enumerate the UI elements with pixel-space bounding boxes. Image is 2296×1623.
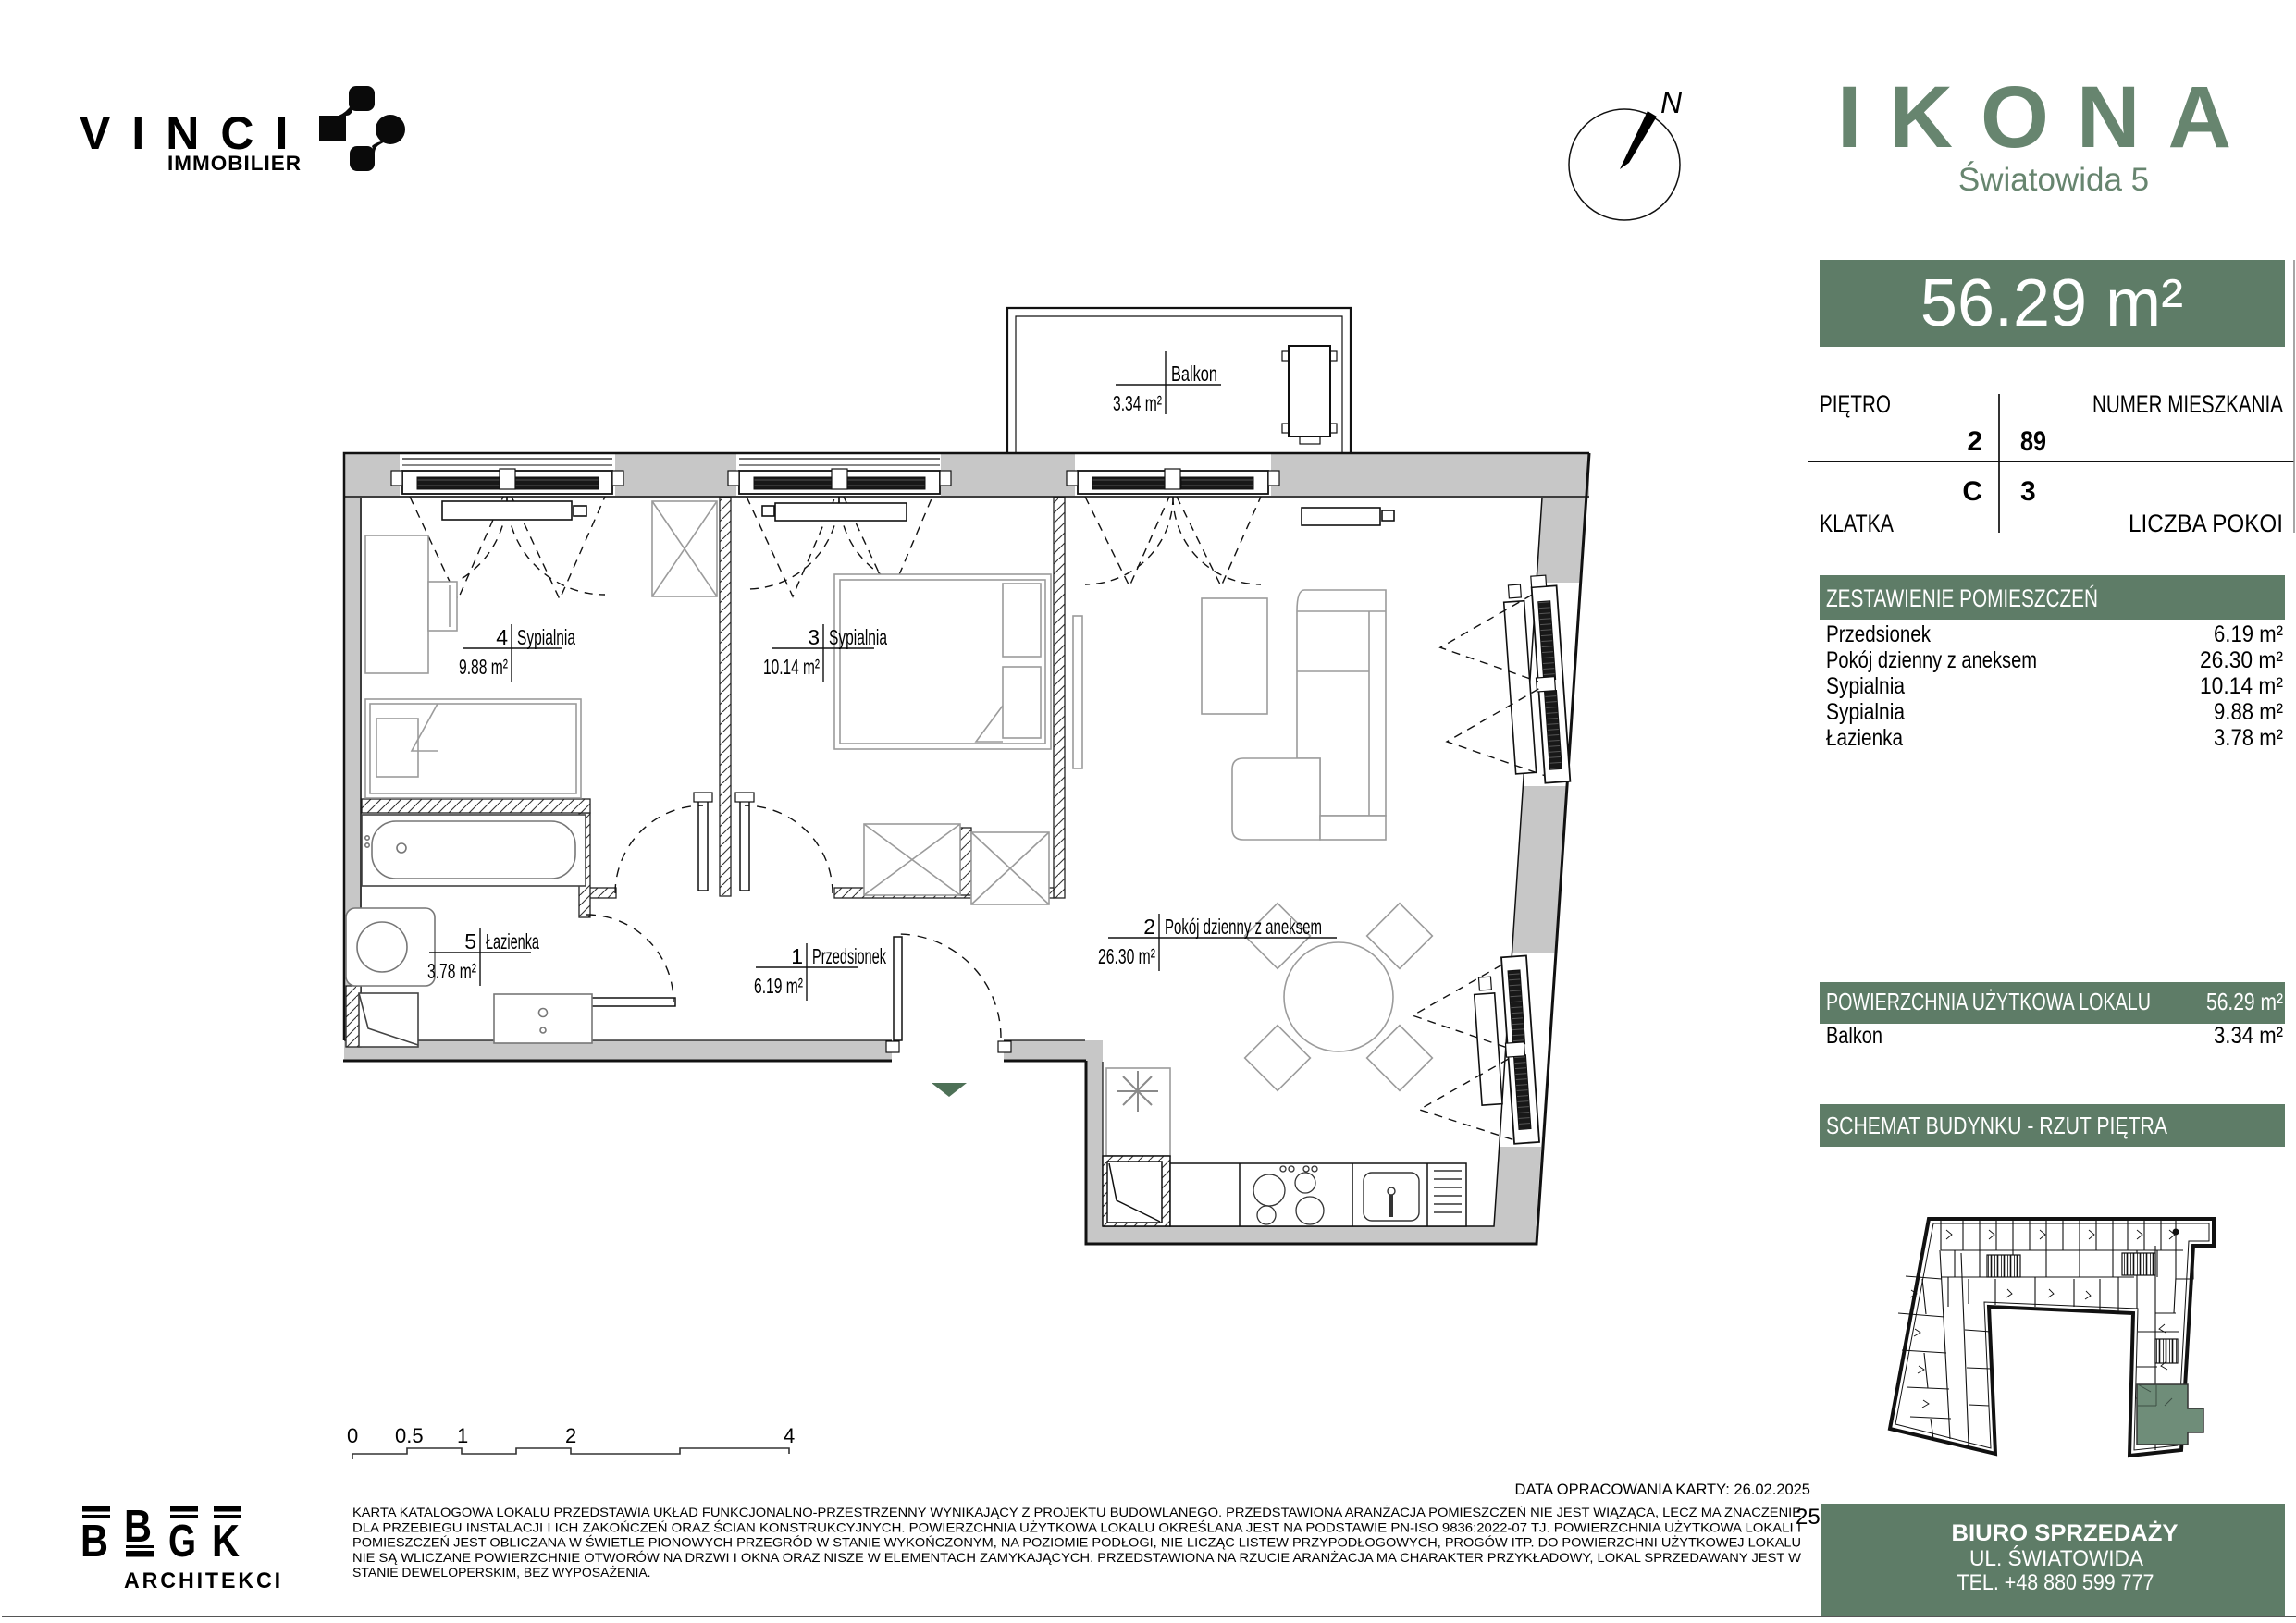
svg-text:3.78 m²: 3.78 m² <box>427 959 476 983</box>
svg-text:4: 4 <box>496 625 508 649</box>
svg-text:Balkon: Balkon <box>1171 362 1217 386</box>
svg-text:N: N <box>1660 86 1683 119</box>
svg-text:IKONA: IKONA <box>1837 68 2259 166</box>
svg-text:Przedsionek: Przedsionek <box>812 944 886 968</box>
svg-text:0: 0 <box>347 1424 358 1447</box>
svg-text:3.34 m²: 3.34 m² <box>2214 1023 2283 1049</box>
svg-text:TEL. +48 880 599 777: TEL. +48 880 599 777 <box>1957 1570 2154 1595</box>
svg-text:Sypialnia: Sypialnia <box>829 625 887 649</box>
svg-text:IMMOBILIER: IMMOBILIER <box>167 152 302 175</box>
svg-text:DATA OPRACOWANIA KARTY: 26.02.: DATA OPRACOWANIA KARTY: 26.02.2025 <box>1515 1482 1810 1498</box>
svg-text:Światowida 5: Światowida 5 <box>1958 161 2149 198</box>
svg-text:LICZBA POKOI: LICZBA POKOI <box>2129 510 2283 537</box>
svg-text:B: B <box>80 1517 108 1567</box>
svg-text:10.14 m²: 10.14 m² <box>763 655 820 679</box>
svg-text:3.34 m²: 3.34 m² <box>1113 391 1162 415</box>
svg-text:UL. ŚWIATOWIDA: UL. ŚWIATOWIDA <box>1969 1545 2143 1571</box>
svg-text:2: 2 <box>1143 915 1155 939</box>
svg-text:3: 3 <box>2020 476 2036 507</box>
svg-text:26.30 m²: 26.30 m² <box>1098 944 1155 968</box>
svg-text:POWIERZCHNIA UŻYTKOWA LOKALU: POWIERZCHNIA UŻYTKOWA LOKALU <box>1826 988 2151 1015</box>
svg-text:4: 4 <box>784 1424 795 1447</box>
svg-text:Sypialnia: Sypialnia <box>1826 673 1905 699</box>
svg-text:ZESTAWIENIE POMIESZCZEŃ: ZESTAWIENIE POMIESZCZEŃ <box>1826 584 2098 612</box>
svg-text:Łazienka: Łazienka <box>1826 725 1903 751</box>
svg-text:KARTA KATALOGOWA LOKALU PRZEDS: KARTA KATALOGOWA LOKALU PRZEDSTAWIA UKŁA… <box>352 1504 1801 1519</box>
svg-text:9.88 m²: 9.88 m² <box>459 655 508 679</box>
svg-text:NIE SĄ WLICZANE POWIERZCHNIE O: NIE SĄ WLICZANE POWIERZCHNIE OTWORÓW NA … <box>352 1549 1802 1565</box>
svg-text:Balkon: Balkon <box>1826 1023 1882 1049</box>
svg-text:G: G <box>168 1517 196 1567</box>
svg-text:5: 5 <box>464 929 476 953</box>
svg-text:PIĘTRO: PIĘTRO <box>1820 390 1891 418</box>
svg-text:Sypialnia: Sypialnia <box>517 625 575 649</box>
svg-text:6.19 m²: 6.19 m² <box>2214 621 2283 647</box>
svg-text:0.5: 0.5 <box>395 1424 424 1447</box>
svg-text:NUMER MIESZKANIA: NUMER MIESZKANIA <box>2092 390 2283 418</box>
svg-text:1: 1 <box>457 1424 468 1447</box>
svg-text:3.78 m²: 3.78 m² <box>2214 725 2283 751</box>
svg-text:56.29 m²: 56.29 m² <box>1920 266 2183 340</box>
svg-text:2: 2 <box>565 1424 576 1447</box>
svg-text:1: 1 <box>791 944 803 968</box>
svg-text:ARCHITEKCI: ARCHITEKCI <box>124 1568 283 1593</box>
svg-text:25: 25 <box>1796 1505 1821 1530</box>
svg-text:Pokój dzienny z aneksem: Pokój dzienny z aneksem <box>1165 915 1322 939</box>
svg-text:2: 2 <box>1967 426 1982 457</box>
svg-text:Łazienka: Łazienka <box>486 929 539 953</box>
svg-text:K: K <box>212 1517 240 1567</box>
svg-text:BIURO SPRZEDAŻY: BIURO SPRZEDAŻY <box>1952 1520 2179 1546</box>
svg-text:26.30 m²: 26.30 m² <box>2200 647 2283 673</box>
svg-text:B: B <box>124 1502 152 1552</box>
svg-text:POMIESZCZEŃ JEST OBLICZANA W Ś: POMIESZCZEŃ JEST OBLICZANA W ŚWIETLE PIO… <box>352 1534 1801 1550</box>
svg-text:C: C <box>1962 476 1982 507</box>
svg-text:89: 89 <box>2020 426 2046 457</box>
svg-text:10.14 m²: 10.14 m² <box>2200 673 2283 699</box>
svg-text:KLATKA: KLATKA <box>1820 510 1894 537</box>
svg-text:56.29 m²: 56.29 m² <box>2206 988 2283 1015</box>
svg-text:Pokój dzienny z aneksem: Pokój dzienny z aneksem <box>1826 647 2037 673</box>
svg-text:DLA PRZEBIEGU INSTALACJI I ICH: DLA PRZEBIEGU INSTALACJI I ICH ZAKOŃCZEŃ… <box>352 1518 1801 1534</box>
svg-text:STANIE DEWELOPERSKIM, BEZ WYPO: STANIE DEWELOPERSKIM, BEZ WYPOSAŻENIA. <box>352 1564 651 1580</box>
svg-text:Przedsionek: Przedsionek <box>1826 621 1931 647</box>
svg-text:Sypialnia: Sypialnia <box>1826 699 1905 725</box>
svg-text:SCHEMAT BUDYNKU - RZUT PIĘTRA: SCHEMAT BUDYNKU - RZUT PIĘTRA <box>1826 1112 2168 1139</box>
svg-text:9.88 m²: 9.88 m² <box>2214 699 2283 725</box>
svg-text:6.19 m²: 6.19 m² <box>754 974 803 998</box>
svg-text:3: 3 <box>808 625 820 649</box>
